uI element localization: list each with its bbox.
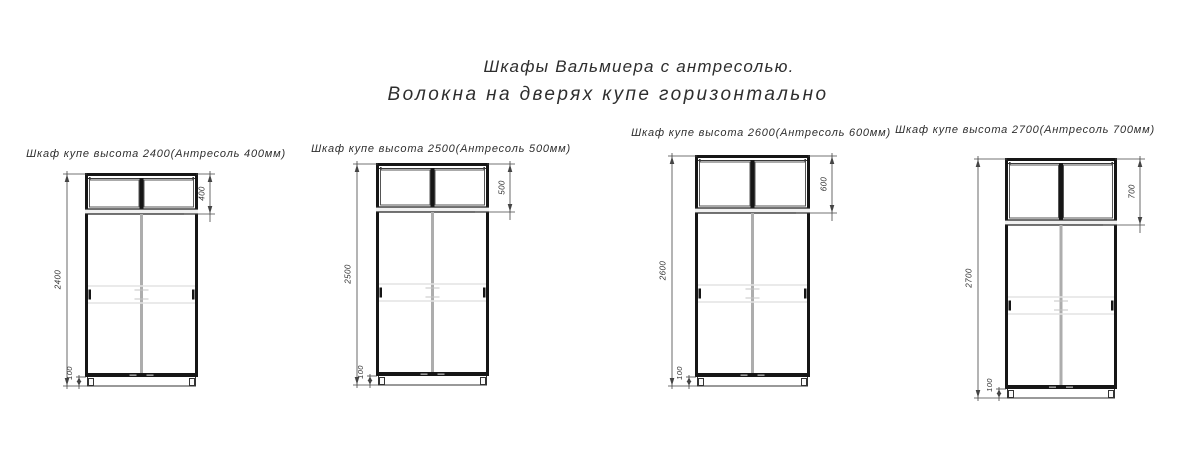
mezzanine-left-door (1010, 165, 1059, 218)
door-joint-line (140, 214, 143, 373)
plinth-foot-left (380, 378, 385, 385)
dim-arrow-mezz-bottom (1138, 217, 1143, 225)
plinth-foot-right (1109, 391, 1114, 398)
dim-arrow-total-top (670, 156, 675, 164)
dim-arrow-total-bottom (976, 390, 981, 398)
dim-arrow-total-bottom (670, 378, 675, 386)
cabinet-bottom-panel (695, 373, 810, 377)
cabinet-label: Шкаф купе высота 2600(Антресоль 600мм) (631, 127, 891, 139)
mezzanine-shelf-band (1005, 220, 1117, 225)
dimension-plinth-height: 100 (356, 365, 365, 379)
cabinet-right-wall (807, 155, 810, 377)
dim-arrow-mezz-top (508, 164, 513, 172)
cabinet-label: Шкаф купе высота 2400(Антресоль 400мм) (26, 148, 286, 160)
dim-arrow-total-top (976, 159, 981, 167)
door-handle-right (804, 289, 807, 299)
dim-arrow-plinth-bottom (687, 381, 692, 386)
mezzanine-right-door (1064, 165, 1113, 218)
drawing-canvas: Шкафы Вальмиера с антресолью. Волокна на… (0, 0, 1200, 451)
mezzanine-divider (1059, 163, 1063, 220)
cabinet-right-wall (1114, 158, 1117, 389)
cabinet-label: Шкаф купе высота 2700(Антресоль 700мм) (895, 124, 1155, 136)
mezzanine-right-door (144, 180, 194, 207)
dim-arrow-plinth-bottom (77, 381, 82, 386)
door-guide-mark-left (421, 373, 428, 375)
dim-arrow-mezz-top (1138, 159, 1143, 167)
mezzanine-divider (431, 168, 435, 207)
plinth-foot-right (802, 379, 807, 386)
door-guide-mark-right (758, 374, 765, 376)
dimension-total-height: 2600 (659, 261, 668, 282)
mezzanine-divider (751, 160, 755, 208)
cabinet-right-wall (195, 173, 198, 377)
dimension-plinth-height: 100 (985, 378, 994, 392)
cabinet-top-panel (1005, 158, 1117, 161)
dim-arrow-plinth-bottom (368, 380, 373, 385)
door-guide-mark-left (1049, 386, 1056, 388)
door-guide-mark-right (1066, 386, 1073, 388)
plinth-foot-right (481, 378, 486, 385)
cabinet-left-wall (695, 155, 698, 377)
mezzanine-shelf-band (376, 207, 489, 212)
dimension-plinth-height: 100 (675, 366, 684, 380)
cabinet-right-wall (486, 163, 489, 376)
dimension-mezzanine-height: 600 (820, 177, 829, 192)
dimension-plinth-height: 100 (65, 366, 74, 380)
mezzanine-shelf-band (85, 209, 198, 214)
door-handle-left (89, 290, 92, 300)
door-handle-right (483, 288, 486, 298)
door-guide-mark-left (130, 374, 137, 376)
cabinet-drawing-2500: Шкаф купе высота 2500(Антресоль 500мм)25… (311, 143, 571, 388)
mezzanine-left-door (700, 162, 751, 206)
cabinet-top-panel (376, 163, 489, 166)
door-joint-line (751, 213, 754, 373)
cabinet-drawing-2400: Шкаф купе высота 2400(Антресоль 400мм)24… (26, 148, 286, 389)
cabinet-left-wall (376, 163, 379, 376)
drawing-title-line2: Волокна на дверях купе горизонтально (388, 84, 829, 106)
dimension-mezzanine-height: 700 (1128, 184, 1137, 199)
door-guide-mark-left (741, 374, 748, 376)
cabinet-drawing-2700: Шкаф купе высота 2700(Антресоль 700мм)27… (895, 124, 1155, 401)
dim-arrow-mezz-bottom (830, 205, 835, 213)
dim-arrow-total-top (65, 174, 70, 182)
door-handle-left (380, 288, 383, 298)
mezzanine-left-door (381, 170, 431, 205)
drawing-title-line1: Шкафы Вальмиера с антресолью. (483, 57, 794, 77)
mezzanine-right-door (755, 162, 806, 206)
cabinet-label: Шкаф купе высота 2500(Антресоль 500мм) (311, 143, 571, 155)
cabinet-top-panel (695, 155, 810, 158)
mezzanine-left-door (90, 180, 140, 207)
plinth-foot-left (89, 379, 94, 386)
plinth-foot-right (190, 379, 195, 386)
door-handle-right (192, 290, 195, 300)
door-joint-line (1060, 225, 1063, 385)
cabinet-drawing-2600: Шкаф купе высота 2600(Антресоль 600мм)26… (631, 127, 891, 389)
cabinet-top-panel (85, 173, 198, 176)
cabinet-left-wall (1005, 158, 1008, 389)
door-joint-line (431, 212, 434, 372)
dim-arrow-mezz-top (830, 156, 835, 164)
plinth-foot-left (1009, 391, 1014, 398)
cabinet-bottom-panel (85, 373, 198, 377)
dim-arrow-total-top (355, 164, 360, 172)
cabinet-bottom-panel (376, 372, 489, 376)
door-handle-left (699, 289, 702, 299)
dimension-mezzanine-height: 400 (198, 186, 207, 201)
dim-arrow-plinth-bottom (997, 393, 1002, 398)
plinth-foot-left (699, 379, 704, 386)
door-guide-mark-right (147, 374, 154, 376)
cabinet-bottom-panel (1005, 385, 1117, 389)
door-guide-mark-right (438, 373, 445, 375)
mezzanine-divider (140, 178, 144, 209)
dim-arrow-mezz-bottom (208, 206, 213, 214)
door-handle-left (1009, 301, 1012, 311)
dim-arrow-mezz-top (208, 174, 213, 182)
dim-arrow-mezz-bottom (508, 204, 513, 212)
dimension-total-height: 2700 (965, 268, 974, 289)
door-handle-right (1111, 301, 1114, 311)
dimension-mezzanine-height: 500 (498, 180, 507, 195)
mezzanine-right-door (435, 170, 485, 205)
cabinet-left-wall (85, 173, 88, 377)
dimension-total-height: 2500 (344, 264, 353, 285)
dimension-total-height: 2400 (54, 270, 63, 291)
mezzanine-shelf-band (695, 208, 810, 213)
